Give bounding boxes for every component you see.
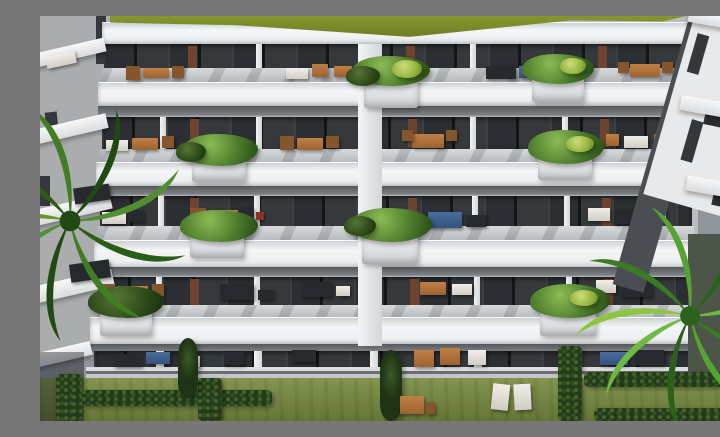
apartment-building-rendering: Aerial 3D rendering of a modern white ap…: [40, 16, 720, 421]
cypress-center: [380, 350, 402, 421]
f2-mullion-d: [564, 196, 570, 228]
patio-lounger-navy: [146, 352, 170, 364]
f3-parapet: [96, 162, 692, 188]
planter-f2-left-foliage: [180, 210, 258, 242]
planter-f2-center-foliage-dark: [344, 216, 376, 236]
planter-f4-center-foliage-lime: [392, 60, 422, 78]
f4-chair-1: [126, 66, 140, 80]
f3-chair-4: [402, 130, 413, 141]
f1-sofa-2: [302, 282, 332, 297]
f2-red-cushion: [256, 212, 264, 220]
f4-rust-a: [188, 46, 197, 70]
f4-mullion-a: [256, 44, 262, 70]
hedge-left-vertical: [56, 374, 82, 421]
f3-mullion-c: [470, 117, 476, 149]
f4-lounger-1: [286, 68, 308, 79]
patio-lounger-wood-2: [440, 348, 460, 365]
f3-table-2: [297, 138, 323, 150]
f3-table-3: [412, 134, 444, 148]
f2-daybed-blue: [428, 212, 462, 228]
hedge-mid-vertical: [198, 378, 222, 421]
f1-ottoman-1: [258, 290, 274, 300]
f4-chair-5: [662, 62, 673, 73]
f3-lounger-2: [624, 136, 648, 148]
f1-lounger-2: [452, 284, 472, 295]
f1-rust-a: [190, 279, 199, 305]
patio-sofa-2: [224, 352, 244, 365]
f1-rust-b: [410, 279, 419, 305]
lawn-lounger-2: [513, 384, 531, 411]
planter-f4-center-foliage-dark: [346, 66, 380, 86]
f1-sofa-1: [220, 284, 254, 300]
f4-table-1: [143, 68, 169, 78]
f3-chair-5: [446, 130, 457, 141]
lawn-lounger-1: [491, 383, 511, 411]
f2-ottoman-dark: [466, 215, 486, 227]
palm-tree-left: [40, 106, 185, 336]
patio-sofa-3: [292, 350, 316, 362]
patio-lounger-white-2: [468, 350, 486, 365]
f4-table-3: [630, 64, 660, 77]
f3-chair-3: [326, 136, 339, 148]
f1-table-2: [420, 282, 446, 295]
patio-lounger-wood-1: [414, 350, 434, 367]
f1-mullion-c: [474, 277, 480, 307]
f4-mullion-b: [470, 44, 476, 70]
f1-lounger-1: [336, 286, 350, 296]
f4-chair-2: [172, 66, 184, 78]
f4-sofa-dark: [486, 66, 516, 79]
lawn-bench: [400, 396, 424, 414]
f4-chair-4: [618, 62, 629, 73]
palm-tree-right: [575, 206, 720, 421]
f3-chair-6: [606, 134, 619, 146]
planter-f3-right-foliage-lime: [566, 136, 594, 152]
planter-f4-right-foliage-lime: [560, 58, 586, 74]
f3-mullion-b: [256, 117, 262, 149]
f3-chair-2: [280, 136, 294, 150]
lawn-bench-leg: [426, 402, 435, 414]
patio-sofa-1: [114, 354, 142, 367]
cypress-left: [178, 338, 198, 398]
f4-rust-c: [598, 46, 607, 70]
f4-chair-3: [312, 64, 328, 77]
f3-slab-shadow: [96, 186, 694, 196]
hedge-left-horizontal: [82, 390, 272, 406]
